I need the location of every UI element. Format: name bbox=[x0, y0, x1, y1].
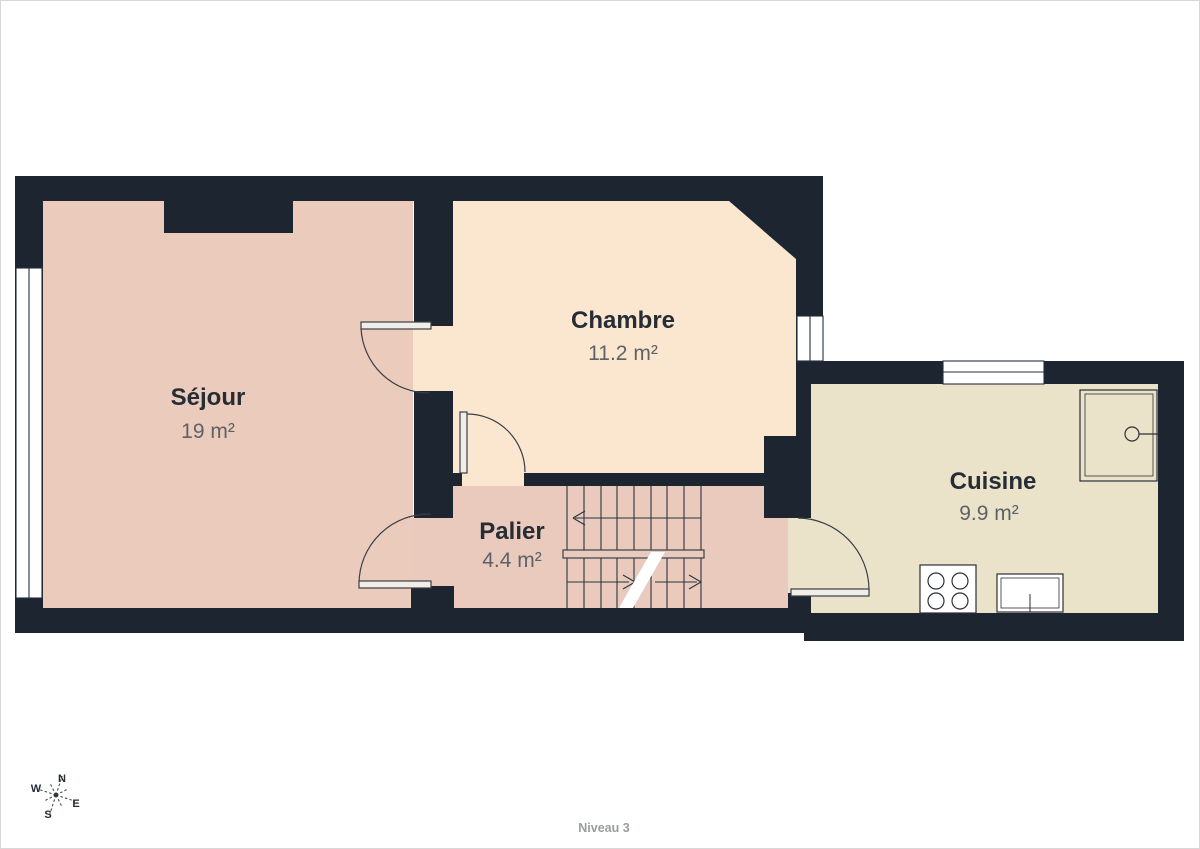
compass-center-dot bbox=[54, 793, 59, 798]
opening-palier-cuisine bbox=[788, 518, 811, 593]
sink-basin bbox=[1080, 390, 1157, 481]
wall-chambre-bottom-b bbox=[524, 473, 764, 486]
wall-bottom-right bbox=[804, 613, 1184, 641]
door-leaf bbox=[791, 589, 869, 596]
room-area-cuisine: 9.9 m² bbox=[959, 502, 1019, 525]
room-label-cuisine: Cuisine bbox=[950, 468, 1037, 495]
room-area-chambre: 11.2 m² bbox=[588, 342, 658, 365]
room-area-palier: 4.4 m² bbox=[482, 549, 542, 572]
door-leaf bbox=[359, 581, 431, 588]
compass-rose-icon: N E S W bbox=[31, 773, 80, 821]
wall-bottom-left bbox=[15, 608, 804, 633]
compass-label-east: E bbox=[72, 798, 79, 810]
room-palier-floor bbox=[453, 486, 791, 608]
wall-sejour-chambre-mid bbox=[414, 391, 453, 518]
room-label-chambre: Chambre bbox=[571, 307, 675, 334]
stove-icon bbox=[920, 565, 976, 613]
floorplan-svg: Séjour 19 m² Chambre 11.2 m² Palier 4.4 … bbox=[1, 1, 1200, 849]
opening-sejour-palier bbox=[413, 518, 453, 586]
opening-chambre-palier bbox=[462, 473, 524, 486]
wall-cuisine-left-upper bbox=[796, 384, 811, 436]
room-area-sejour: 19 m² bbox=[181, 420, 235, 443]
wall-top-notch bbox=[164, 201, 293, 233]
room-label-sejour: Séjour bbox=[171, 384, 246, 411]
counter-appliance-icon bbox=[997, 574, 1063, 612]
door-leaf bbox=[460, 412, 467, 473]
floorplan-page: Séjour 19 m² Chambre 11.2 m² Palier 4.4 … bbox=[0, 0, 1200, 849]
wall-sejour-chambre-upper bbox=[414, 201, 453, 326]
wall-sejour-palier-lower bbox=[411, 586, 454, 608]
opening-sejour-chambre bbox=[413, 326, 453, 391]
room-chambre-floor bbox=[453, 201, 796, 473]
door-leaf bbox=[361, 322, 431, 329]
compass-label-south: S bbox=[44, 809, 51, 821]
wall-pillar-chambre-cuisine bbox=[764, 436, 811, 518]
compass-label-west: W bbox=[31, 783, 42, 795]
compass-label-north: N bbox=[58, 773, 66, 785]
stove-body bbox=[920, 565, 976, 613]
level-label: Niveau 3 bbox=[578, 821, 629, 835]
wall-chambre-bottom-a bbox=[453, 473, 462, 486]
room-label-palier: Palier bbox=[479, 518, 544, 545]
wall-right bbox=[1158, 361, 1184, 641]
sink-icon bbox=[1080, 390, 1158, 481]
